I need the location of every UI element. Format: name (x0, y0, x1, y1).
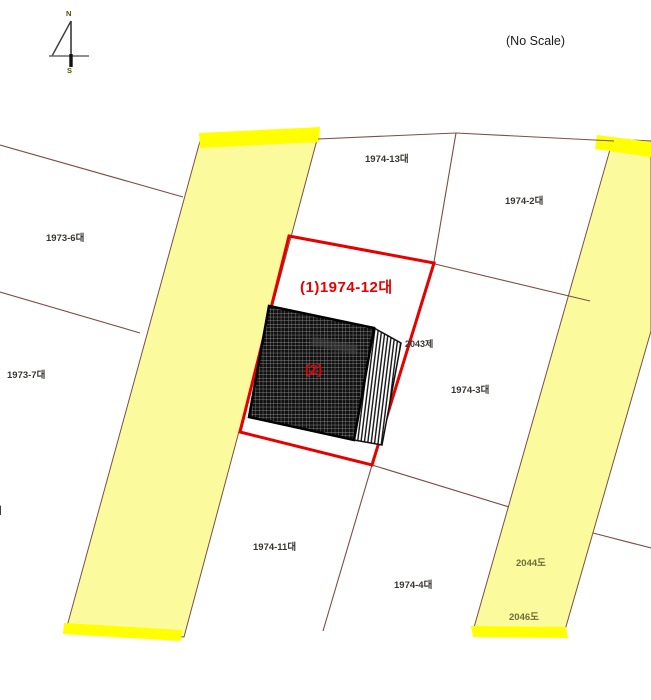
parcel-label-1974-4: 1974-4대 (394, 577, 432, 591)
boundary-line (372, 465, 509, 507)
scale-note: (No Scale) (506, 34, 565, 48)
boundary-line (434, 133, 456, 262)
map-geometry (0, 0, 651, 700)
boundary-line (593, 533, 651, 548)
parcel-label-1973-6: 1973-6대 (46, 230, 84, 244)
road-label-2044: 2044도 (516, 555, 546, 569)
boundary-line (0, 145, 183, 197)
edge-partial-label: 대 (0, 501, 4, 515)
road-east-highlight-bottom (471, 626, 568, 638)
parcel-label-1974-2: 1974-2대 (505, 193, 543, 207)
north-arrow-icon (49, 21, 89, 67)
subject-building-label: (2) (305, 361, 322, 377)
parcel-label-1974-13: 1974-13대 (365, 151, 409, 165)
parcel-label-1974-3: 1974-3대 (451, 382, 489, 396)
boundary-line (0, 292, 140, 333)
parcel-label-1974-11: 1974-11대 (253, 539, 296, 553)
compass-south-label: S (67, 66, 72, 75)
boundary-line (435, 264, 590, 301)
parcel-label-1973-7: 1973-7대 (7, 367, 45, 381)
subject-parcel-label: (1)1974-12대 (300, 276, 393, 297)
boundary-line (318, 133, 456, 139)
road-label-2046: 2046도 (509, 609, 539, 623)
compass-north-label: N (66, 9, 71, 18)
boundary-line (456, 133, 614, 141)
boundary-line (323, 465, 372, 631)
road-strip-east (473, 139, 651, 631)
cadastral-map-page: N S (No Scale) 1973-6대 1973-7대 1974-13대 … (0, 0, 651, 700)
parcel-label-2043: 2043제 (405, 337, 433, 350)
